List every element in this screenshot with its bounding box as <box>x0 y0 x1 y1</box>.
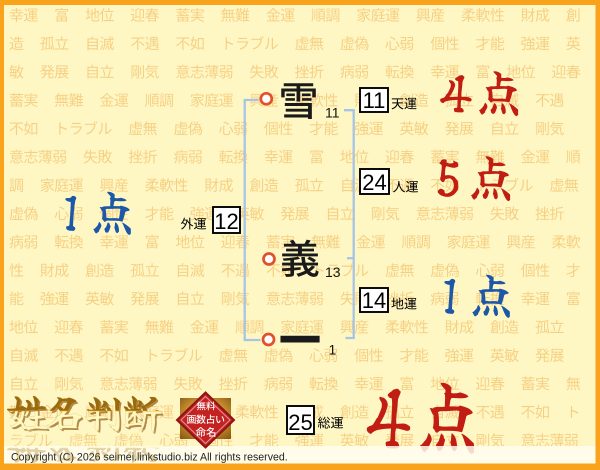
svg-text:1: 1 <box>329 342 337 358</box>
svg-text:11: 11 <box>325 105 340 121</box>
svg-text:Copyright (C) 2026 seimei.link: Copyright (C) 2026 seimei.linkstudio.biz… <box>11 452 288 464</box>
svg-text:12: 12 <box>214 209 238 234</box>
svg-text:25: 25 <box>288 410 312 435</box>
svg-text:13: 13 <box>325 264 341 280</box>
svg-text:24: 24 <box>362 170 386 195</box>
svg-text:11: 11 <box>363 88 386 113</box>
svg-text:14: 14 <box>362 288 386 313</box>
